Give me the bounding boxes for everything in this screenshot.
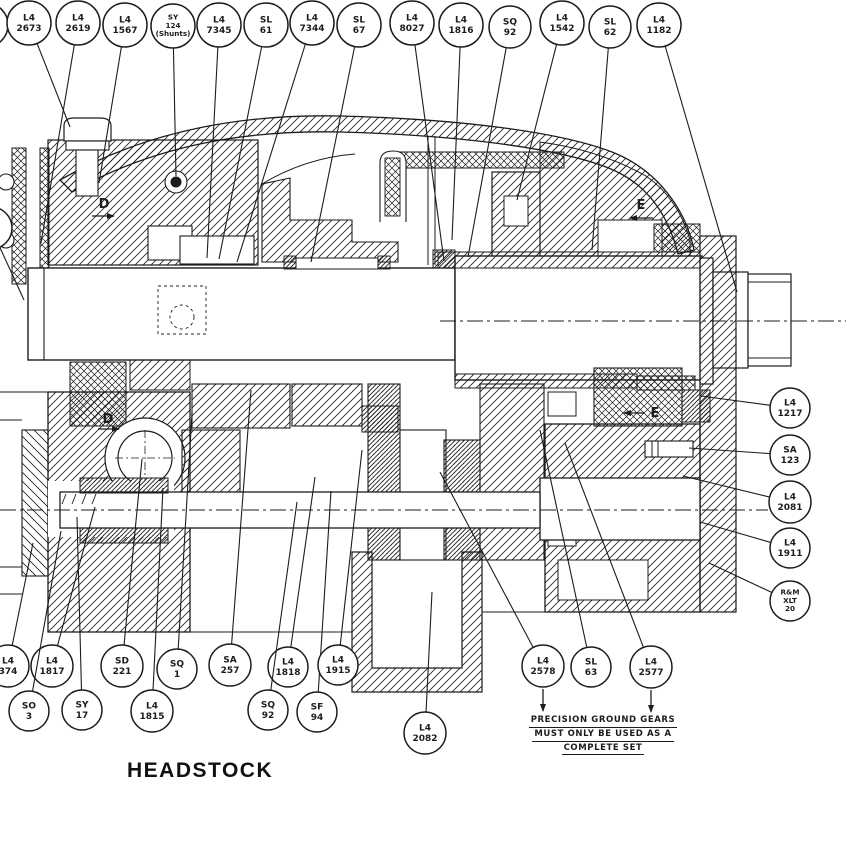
balloon-text: 3 (26, 712, 32, 722)
spindle-body (455, 256, 702, 380)
leader-line (452, 47, 460, 240)
spacer-bar (296, 258, 378, 269)
balloon-text: L4 (119, 16, 131, 26)
balloon-text: 1911 (777, 549, 802, 559)
block-window (558, 560, 648, 600)
upper-left-assembly (0, 118, 258, 284)
spacer-seal (378, 256, 390, 269)
section-letter: E (651, 406, 660, 421)
balloon-text: 1817 (39, 667, 64, 677)
balloon-text: SD (115, 657, 129, 667)
balloon-text: 1182 (646, 26, 671, 36)
balloon-text: L4 (332, 656, 344, 666)
balloon-text: L4 (213, 16, 225, 26)
cavity-outline (262, 154, 355, 184)
balloon-text: 2082 (412, 734, 437, 744)
gear-note-line1: PRECISION GROUND GEARS (529, 716, 678, 728)
selector-fork-section (262, 178, 398, 262)
drawing-title: HEADSTOCK (127, 759, 273, 783)
left-bearing-inner (40, 148, 49, 284)
balloon-text: L4 (645, 658, 657, 668)
shaft-collar (80, 478, 168, 493)
balloon-text: SQ (170, 660, 184, 670)
spindle-end (748, 274, 791, 366)
balloon-text: SA (223, 656, 236, 666)
balloon-text: L4 (282, 658, 294, 668)
balloon-text: L4 (72, 14, 84, 24)
balloon-text: 94 (311, 713, 324, 723)
balloon-text: L4 (537, 657, 549, 667)
section-letter: D (103, 412, 114, 427)
bolt-washer (66, 141, 109, 150)
balloon-text: SQ (261, 701, 275, 711)
spacer-seal (284, 256, 296, 269)
section-letter: E (637, 198, 646, 213)
balloon-text: 2619 (65, 24, 90, 34)
balloon-text: SY (76, 701, 89, 711)
cluster-gear-left (70, 362, 126, 426)
gear-note-line3: COMPLETE SET (562, 744, 645, 756)
clutch-ring-section (396, 152, 564, 168)
headstock-drawing-page: L42673L42619L41567SY124(Shunts)L47345SL6… (0, 0, 846, 847)
balloon-text: 20 (785, 604, 795, 613)
balloon-text: 92 (262, 711, 275, 721)
balloon-text: 61 (260, 26, 273, 36)
balloon-text: SQ (503, 18, 517, 28)
balloon-text: SO (22, 702, 36, 712)
left-bearing-outer (12, 148, 26, 284)
bolt-shank (76, 150, 98, 196)
balloon-text: 1217 (777, 409, 802, 419)
balloon-text: SL (353, 16, 365, 26)
balloon-text: 62 (604, 28, 617, 38)
bolt-head (64, 118, 111, 141)
balloon-text: 7345 (206, 26, 231, 36)
right-gear-section (594, 368, 682, 426)
balloon-text: L4 (784, 399, 796, 409)
balloon-text: 1542 (549, 24, 574, 34)
leader-line (37, 43, 70, 127)
balloon-text: 67 (353, 26, 366, 36)
under-spindle-band (130, 360, 190, 390)
gear-keyway (504, 196, 528, 226)
gear-note-line2: MUST ONLY BE USED AS A (532, 730, 673, 742)
balloon-text: (Shunts) (156, 29, 191, 38)
balloon-text: 2081 (777, 503, 802, 513)
balloon-text: 374 (0, 667, 17, 677)
balloon-text: 2578 (530, 667, 555, 677)
balloon-text: 1567 (112, 26, 137, 36)
locknut-section (654, 224, 700, 252)
balloon-text: 7344 (299, 24, 324, 34)
balloon-text: 2673 (16, 24, 41, 34)
bracket-channel-section (352, 552, 482, 692)
balloon-text: L4 (784, 539, 796, 549)
balloon-text: 257 (221, 666, 240, 676)
headstock-section-drawing: L42673L42619L41567SY124(Shunts)L47345SL6… (0, 0, 846, 847)
casting-slot (180, 236, 254, 264)
balloon-text: L4 (46, 657, 58, 667)
balloon-text: 221 (113, 667, 132, 677)
balloon-text: L4 (653, 16, 665, 26)
balloon-text: L4 (23, 14, 35, 24)
balloon-text: 1816 (448, 26, 473, 36)
spindle-front (28, 268, 455, 360)
balloon-text: L4 (146, 702, 158, 712)
balloon-text: 1 (174, 670, 180, 680)
leader-line (426, 592, 432, 712)
lower-shaft-right (540, 478, 700, 540)
gear-note: PRECISION GROUND GEARS MUST ONLY BE USED… (524, 716, 682, 757)
balloon-text: 2577 (638, 668, 663, 678)
balloon-text: 63 (585, 668, 598, 678)
balloon-text: L4 (406, 14, 418, 24)
bearing-ball (0, 174, 14, 190)
mid-gear-section (292, 384, 362, 426)
shaft-collar (80, 528, 168, 543)
balloon-text: SF (311, 703, 324, 713)
seal-packing (385, 158, 400, 216)
balloon-text: 17 (76, 711, 89, 721)
balloon-text: SL (260, 16, 272, 26)
section-letter: D (99, 197, 110, 212)
right-wall-section (700, 236, 736, 612)
balloon-text: SL (585, 658, 597, 668)
balloon-text: L4 (556, 14, 568, 24)
balloon-text: 8027 (399, 24, 424, 34)
left-wall-section (22, 430, 48, 576)
roller-bearing (548, 392, 576, 416)
balloon-text: 1818 (275, 668, 300, 678)
balloon-text: SL (604, 18, 616, 28)
balloon-text: 1915 (325, 666, 350, 676)
balloon-text: L4 (784, 493, 796, 503)
part-balloon: L4374 (0, 543, 33, 687)
part-balloon: SQ92 (248, 502, 297, 730)
large-gear-section (368, 384, 400, 560)
gear-cluster-section (480, 384, 544, 560)
mid-block-section (192, 384, 290, 428)
balloon-text: L4 (2, 657, 14, 667)
balloon-text: L4 (455, 16, 467, 26)
right-spacer-section (682, 390, 710, 422)
balloon-text: 92 (504, 28, 517, 38)
oiler-plug (171, 177, 182, 188)
balloon-text: L4 (419, 724, 431, 734)
spindle-sleeve-section (438, 252, 700, 268)
balloon-text: L4 (306, 14, 318, 24)
balloon-text: SA (783, 446, 796, 456)
balloon-text: 1815 (139, 712, 164, 722)
balloon-text: 123 (781, 456, 800, 466)
